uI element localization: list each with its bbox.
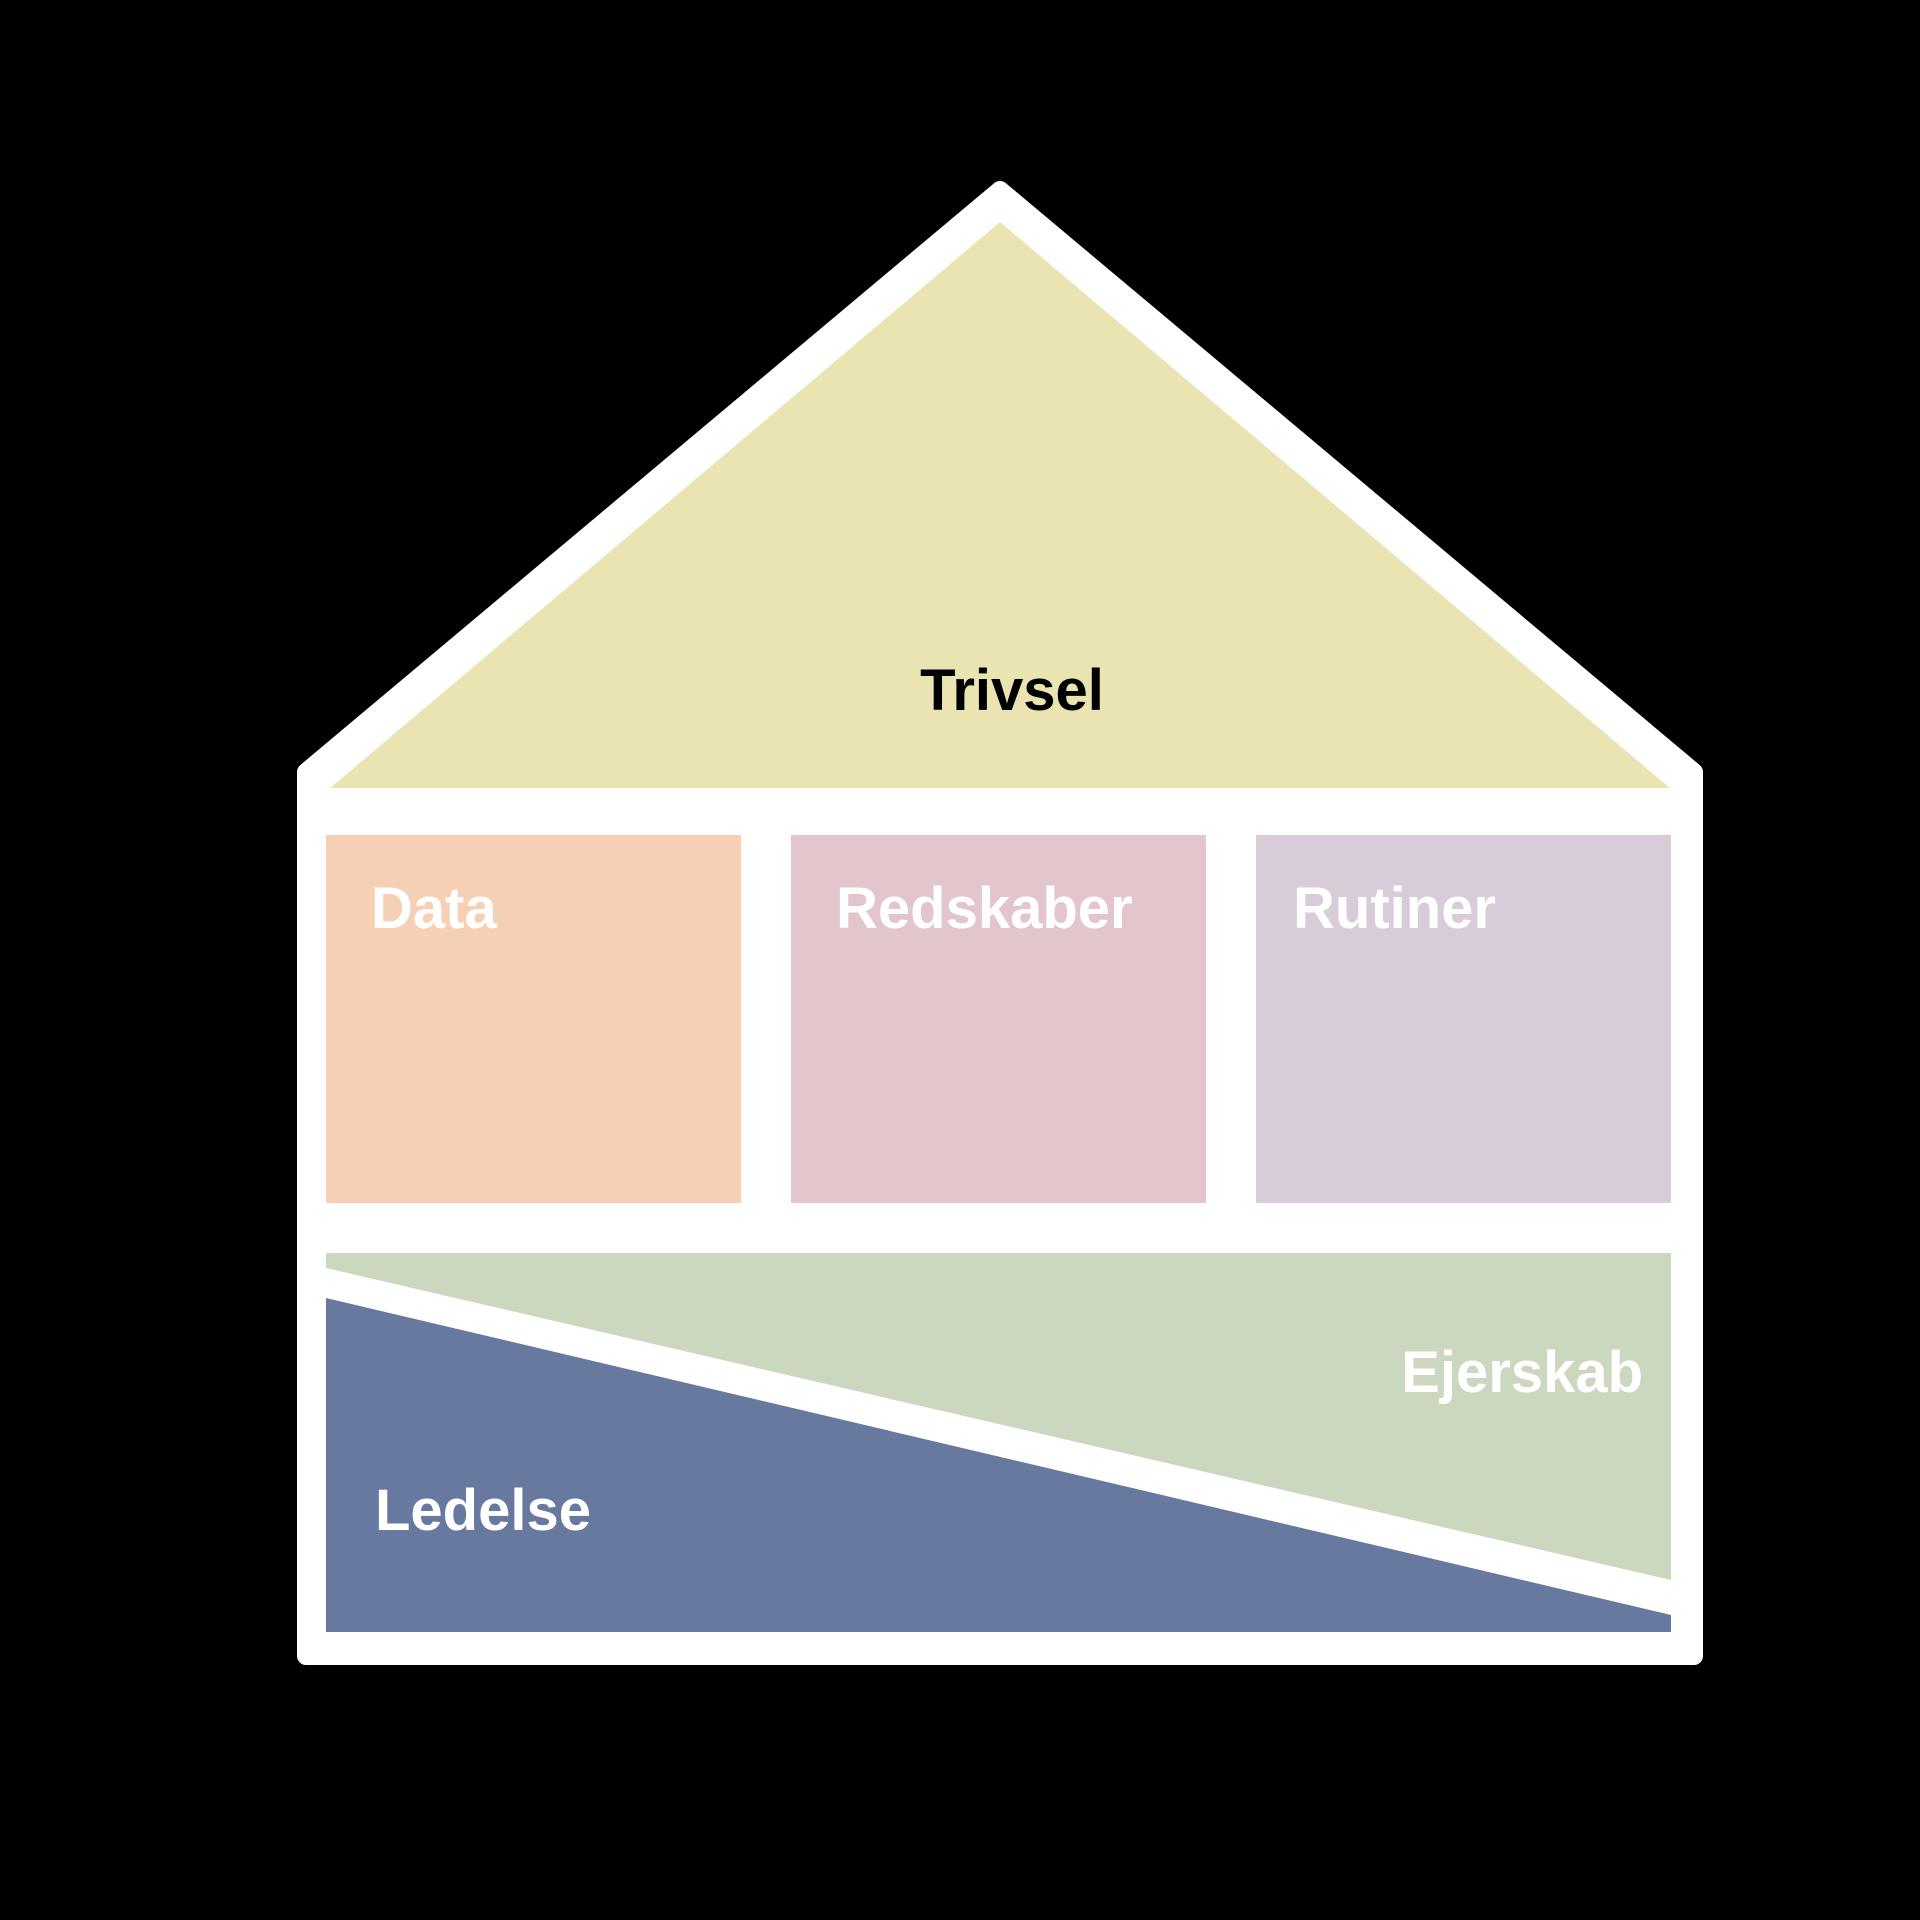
house-diagram-canvas: Trivsel Data Redskaber Rutiner Ejerskab …	[0, 0, 1920, 1920]
house-diagram: Trivsel Data Redskaber Rutiner Ejerskab …	[0, 0, 1920, 1920]
pillar-rutiner-label: Rutiner	[1293, 876, 1496, 941]
foundation-ledelse-label: Ledelse	[375, 1478, 591, 1543]
roof-label: Trivsel	[920, 658, 1104, 723]
pillars: Data Redskaber Rutiner	[326, 835, 1671, 1203]
pillar-redskaber-label: Redskaber	[836, 876, 1133, 941]
pillar-data-label: Data	[371, 876, 497, 941]
foundation-ejerskab-label: Ejerskab	[1401, 1340, 1643, 1405]
